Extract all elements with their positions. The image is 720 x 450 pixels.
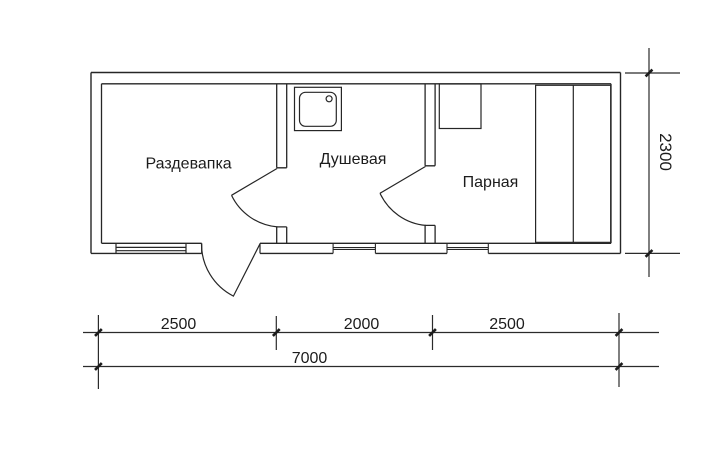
svg-text:Парная: Парная [463,174,519,191]
svg-text:2500: 2500 [489,316,525,333]
svg-text:2000: 2000 [344,316,380,333]
svg-text:Раздевапка: Раздевапка [145,156,231,173]
svg-text:Душевая: Душевая [320,151,387,168]
svg-text:2500: 2500 [161,316,197,333]
svg-text:7000: 7000 [292,350,328,367]
svg-text:2300: 2300 [656,133,675,171]
